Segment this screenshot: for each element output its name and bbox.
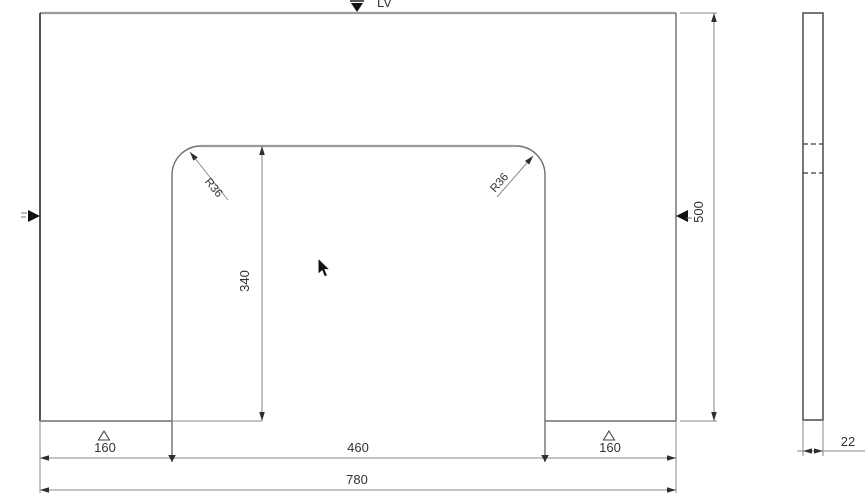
dim-thickness: 22 bbox=[841, 434, 855, 449]
arrowhead bbox=[814, 448, 823, 453]
arrowhead bbox=[667, 455, 676, 461]
dim-notch-height: 340 bbox=[237, 270, 252, 292]
radius-leader-left: R36 bbox=[190, 152, 228, 200]
arrowhead bbox=[40, 487, 49, 493]
dim-radius-right: R36 bbox=[488, 171, 511, 195]
dim-total-width: 780 bbox=[346, 472, 368, 487]
arrowhead bbox=[667, 487, 676, 493]
technical-drawing: LV 160 460 160 780 340 bbox=[0, 0, 865, 495]
right-open-triangle-icon bbox=[604, 431, 615, 440]
top-datum-label: LV bbox=[377, 0, 392, 10]
radius-leader-right: R36 bbox=[488, 156, 533, 197]
dimension-notch-height: 340 bbox=[237, 146, 265, 421]
dimension-total-width: 780 bbox=[40, 472, 676, 493]
arrowhead bbox=[259, 146, 265, 155]
datum-markers: LV bbox=[21, 0, 692, 440]
left-datum-triangle-icon bbox=[28, 210, 40, 222]
arrowhead bbox=[711, 412, 717, 421]
top-datum-triangle-icon bbox=[351, 3, 363, 12]
side-view-outline bbox=[803, 13, 823, 420]
dim-radius-left: R36 bbox=[202, 176, 225, 200]
dim-bottom-right: 160 bbox=[599, 440, 621, 455]
arrowhead bbox=[259, 412, 265, 421]
right-datum-triangle-icon bbox=[676, 210, 688, 222]
front-view-outline bbox=[40, 13, 676, 462]
dim-height: 500 bbox=[691, 201, 706, 223]
arrowhead bbox=[711, 13, 717, 22]
arrowhead bbox=[40, 455, 49, 461]
side-view: 22 bbox=[797, 13, 865, 456]
dim-bottom-center: 460 bbox=[347, 440, 369, 455]
arrowhead bbox=[190, 152, 198, 161]
arrowhead bbox=[803, 448, 812, 453]
cad-drawing-viewport[interactable]: LV 160 460 160 780 340 bbox=[0, 0, 865, 495]
dim-bottom-left: 160 bbox=[94, 440, 116, 455]
left-open-triangle-icon bbox=[99, 431, 110, 440]
mouse-cursor-icon bbox=[318, 258, 330, 277]
